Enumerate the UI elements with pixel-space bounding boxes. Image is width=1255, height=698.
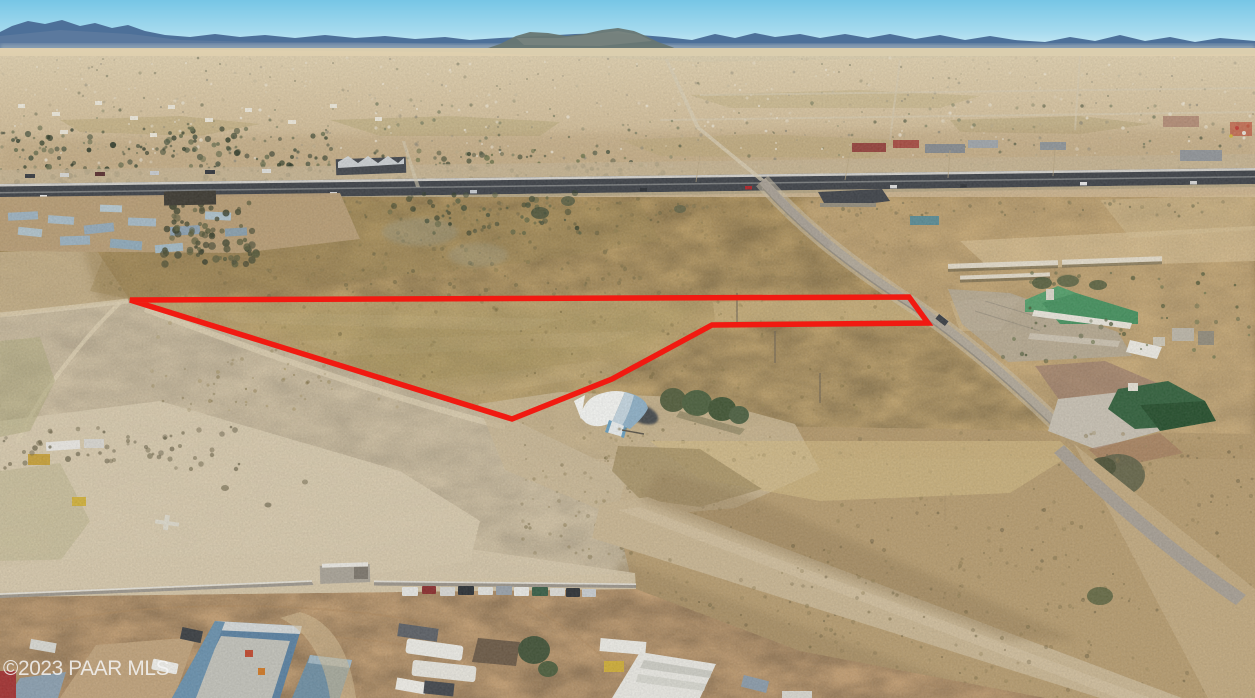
svg-text:©2023 PAAR MLS: ©2023 PAAR MLS [3, 657, 169, 680]
